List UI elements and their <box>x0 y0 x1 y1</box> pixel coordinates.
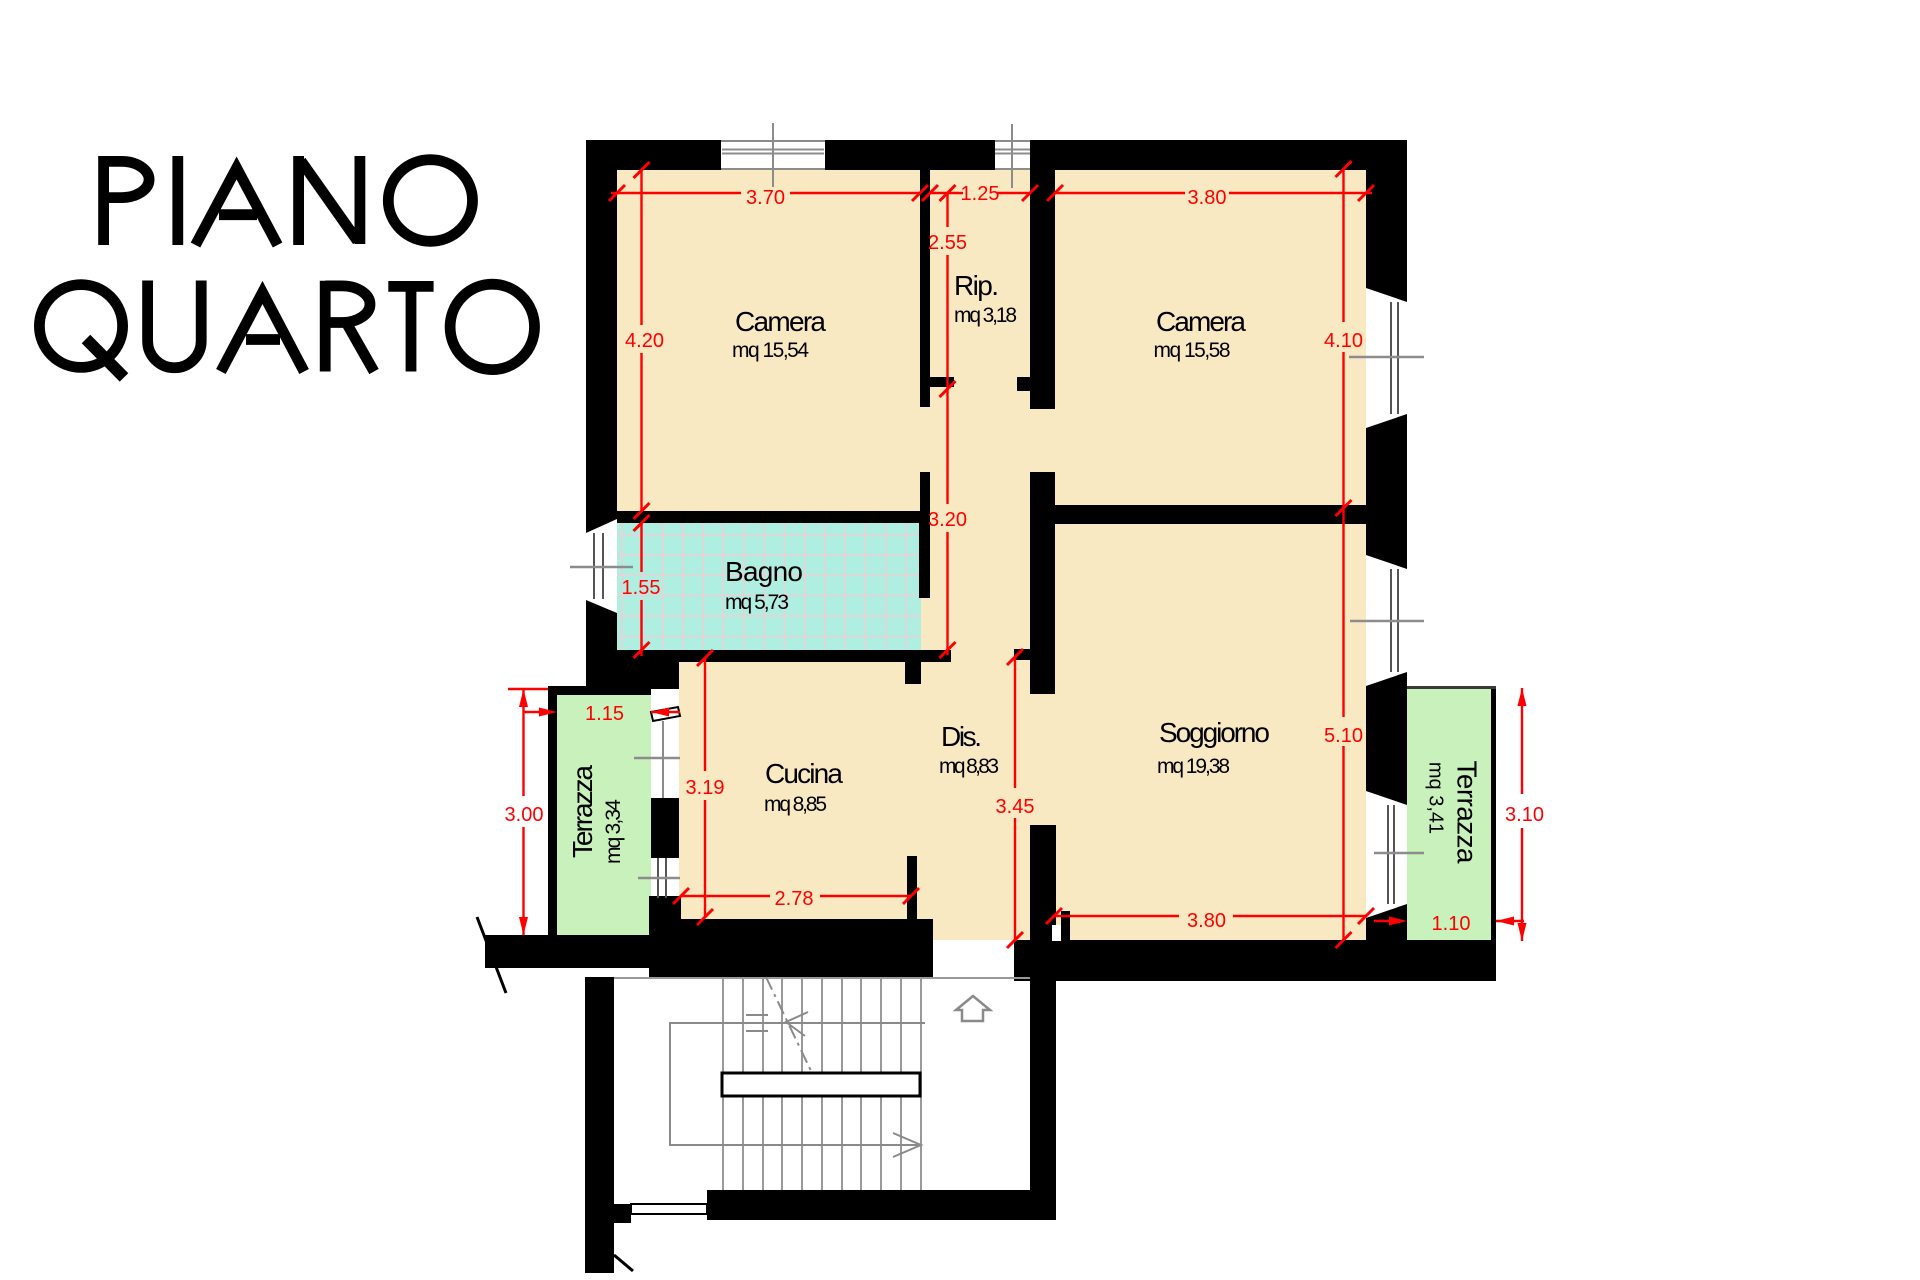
svg-text:mq 3,41: mq 3,41 <box>1425 762 1447 834</box>
svg-text:1.55: 1.55 <box>622 577 661 599</box>
svg-text:Camera: Camera <box>1156 306 1246 337</box>
svg-text:Dis.: Dis. <box>941 721 982 752</box>
svg-text:Bagno: Bagno <box>725 556 803 587</box>
svg-text:Soggiorno: Soggiorno <box>1159 717 1270 748</box>
svg-text:3.80: 3.80 <box>1188 187 1227 209</box>
svg-text:3.45: 3.45 <box>996 796 1035 818</box>
svg-text:Terrazza: Terrazza <box>1452 761 1483 864</box>
svg-text:mq 3,18: mq 3,18 <box>954 304 1017 327</box>
svg-text:2.78: 2.78 <box>775 888 814 910</box>
svg-text:Terrazza: Terrazza <box>567 765 598 858</box>
svg-text:mq 3,34: mq 3,34 <box>602 799 625 864</box>
svg-text:3.00: 3.00 <box>505 804 544 826</box>
svg-text:3.80: 3.80 <box>1187 910 1226 932</box>
svg-text:3.70: 3.70 <box>746 187 785 209</box>
svg-text:3.20: 3.20 <box>928 509 967 531</box>
svg-text:4.10: 4.10 <box>1324 330 1363 352</box>
svg-text:4.20: 4.20 <box>625 330 664 352</box>
svg-text:1.10: 1.10 <box>1432 913 1471 935</box>
svg-text:Rip.: Rip. <box>954 270 999 301</box>
svg-text:mq 8,85: mq 8,85 <box>764 793 827 816</box>
svg-text:3.10: 3.10 <box>1505 804 1544 826</box>
svg-text:1.15: 1.15 <box>585 703 624 725</box>
svg-text:3.19: 3.19 <box>686 777 725 799</box>
svg-text:mq 15,58: mq 15,58 <box>1154 339 1231 362</box>
svg-text:Camera: Camera <box>735 306 826 337</box>
svg-text:1.25: 1.25 <box>961 183 1000 205</box>
svg-text:mq 19,38: mq 19,38 <box>1157 755 1230 778</box>
svg-text:mq 8,83: mq 8,83 <box>939 755 999 778</box>
svg-text:mq 15,54: mq 15,54 <box>732 339 809 362</box>
svg-text:Cucina: Cucina <box>765 758 843 789</box>
svg-text:2.55: 2.55 <box>928 232 967 254</box>
svg-text:5.10: 5.10 <box>1324 725 1363 747</box>
svg-text:mq 5,73: mq 5,73 <box>725 591 789 614</box>
